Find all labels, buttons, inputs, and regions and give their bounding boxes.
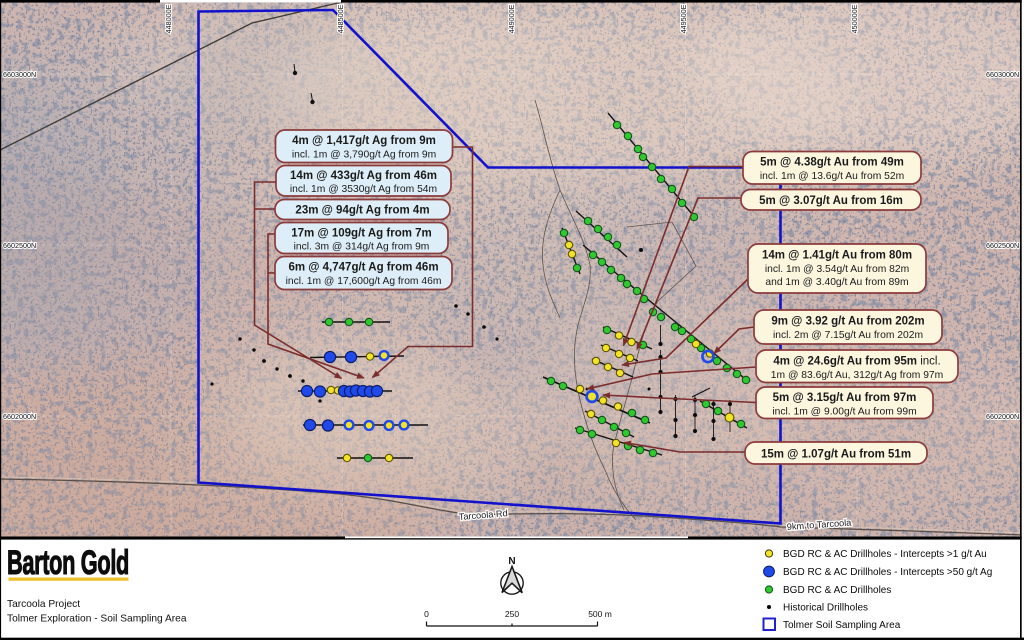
svg-text:Tolmer Soil Sampling Area: Tolmer Soil Sampling Area bbox=[783, 620, 901, 631]
svg-text:4m @ 24.6g/t Au from 95m incl.: 4m @ 24.6g/t Au from 95m incl. bbox=[773, 356, 940, 368]
svg-text:6602000N: 6602000N bbox=[986, 412, 1019, 421]
svg-text:6602500N: 6602500N bbox=[3, 241, 36, 250]
svg-text:450000E: 450000E bbox=[850, 4, 859, 33]
svg-text:449000E: 449000E bbox=[507, 4, 516, 33]
svg-text:448500E: 448500E bbox=[336, 4, 345, 33]
svg-text:incl. 1m @ 13.6g/t Au from 52m: incl. 1m @ 13.6g/t Au from 52m bbox=[760, 171, 904, 182]
svg-text:Barton Gold: Barton Gold bbox=[7, 544, 129, 582]
svg-text:14m @ 1.41g/t Au from 80m: 14m @ 1.41g/t Au from 80m bbox=[762, 250, 912, 262]
svg-text:6602500N: 6602500N bbox=[986, 241, 1019, 250]
svg-text:incl. 1m @ 3530g/t Ag from 54m: incl. 1m @ 3530g/t Ag from 54m bbox=[290, 184, 437, 195]
svg-text:6602000N: 6602000N bbox=[3, 412, 36, 421]
svg-text:incl. 3m @ 314g/t Ag from 9m: incl. 3m @ 314g/t Ag from 9m bbox=[294, 242, 430, 253]
svg-text:449500E: 449500E bbox=[679, 4, 688, 33]
svg-text:5m @ 4.38g/t Au from 49m: 5m @ 4.38g/t Au from 49m bbox=[760, 157, 904, 169]
svg-text:6603000N: 6603000N bbox=[986, 70, 1019, 79]
svg-text:23m @ 94g/t Ag from 4m: 23m @ 94g/t Ag from 4m bbox=[295, 205, 429, 217]
svg-text:17m @ 109g/t Ag from 7m: 17m @ 109g/t Ag from 7m bbox=[291, 228, 432, 240]
svg-text:500 m: 500 m bbox=[588, 609, 612, 619]
svg-text:BGD RC & AC Drillholes - Inter: BGD RC & AC Drillholes - Intercepts >1 g… bbox=[783, 549, 987, 560]
svg-text:BGD RC & AC Drillholes: BGD RC & AC Drillholes bbox=[783, 585, 891, 596]
svg-text:9m @ 3.92 g/t Au from 202m: 9m @ 3.92 g/t Au from 202m bbox=[771, 316, 924, 328]
svg-text:5m @ 3.07g/t Au from 16m: 5m @ 3.07g/t Au from 16m bbox=[759, 195, 903, 207]
svg-text:and 1m @ 3.40g/t Au from 89m: and 1m @ 3.40g/t Au from 89m bbox=[765, 277, 908, 288]
svg-text:250: 250 bbox=[505, 609, 519, 619]
svg-text:5m @ 3.15g/t Au from 97m: 5m @ 3.15g/t Au from 97m bbox=[773, 392, 917, 404]
svg-text:6603000N: 6603000N bbox=[3, 70, 36, 79]
svg-text:incl. 1m @ 9.00g/t Au from 99m: incl. 1m @ 9.00g/t Au from 99m bbox=[772, 407, 916, 418]
svg-text:incl. 1m @ 3.54g/t Au from 82m: incl. 1m @ 3.54g/t Au from 82m bbox=[765, 264, 909, 275]
svg-text:0: 0 bbox=[424, 609, 429, 619]
svg-text:6m @ 4,747g/t Ag from 46m: 6m @ 4,747g/t Ag from 46m bbox=[288, 262, 438, 274]
svg-text:15m @ 1.07g/t Au from 51m: 15m @ 1.07g/t Au from 51m bbox=[761, 449, 911, 461]
svg-text:448000E: 448000E bbox=[164, 4, 173, 33]
svg-text:Historical Drillholes: Historical Drillholes bbox=[783, 603, 868, 614]
svg-text:incl. 1m @ 3,790g/t Ag from 9m: incl. 1m @ 3,790g/t Ag from 9m bbox=[292, 150, 436, 161]
svg-text:incl. 1m @ 17,600g/t Ag from 4: incl. 1m @ 17,600g/t Ag from 46m bbox=[286, 276, 442, 287]
svg-text:BGD RC & AC Drillholes - Inter: BGD RC & AC Drillholes - Intercepts >50 … bbox=[783, 567, 992, 578]
svg-text:4m @ 1,417g/t Ag from 9m: 4m @ 1,417g/t Ag from 9m bbox=[292, 135, 436, 147]
svg-text:1m @ 83.6g/t Au, 312g/t Ag fro: 1m @ 83.6g/t Au, 312g/t Ag from 97m bbox=[771, 370, 943, 381]
svg-text:Tarcoola Project: Tarcoola Project bbox=[7, 599, 80, 610]
svg-text:14m @ 433g/t Ag from 46m: 14m @ 433g/t Ag from 46m bbox=[290, 170, 437, 182]
svg-text:incl. 2m @ 7.15g/t Au from 202: incl. 2m @ 7.15g/t Au from 202m bbox=[773, 330, 923, 341]
svg-text:Tolmer Exploration - Soil Samp: Tolmer Exploration - Soil Sampling Area bbox=[7, 614, 187, 625]
